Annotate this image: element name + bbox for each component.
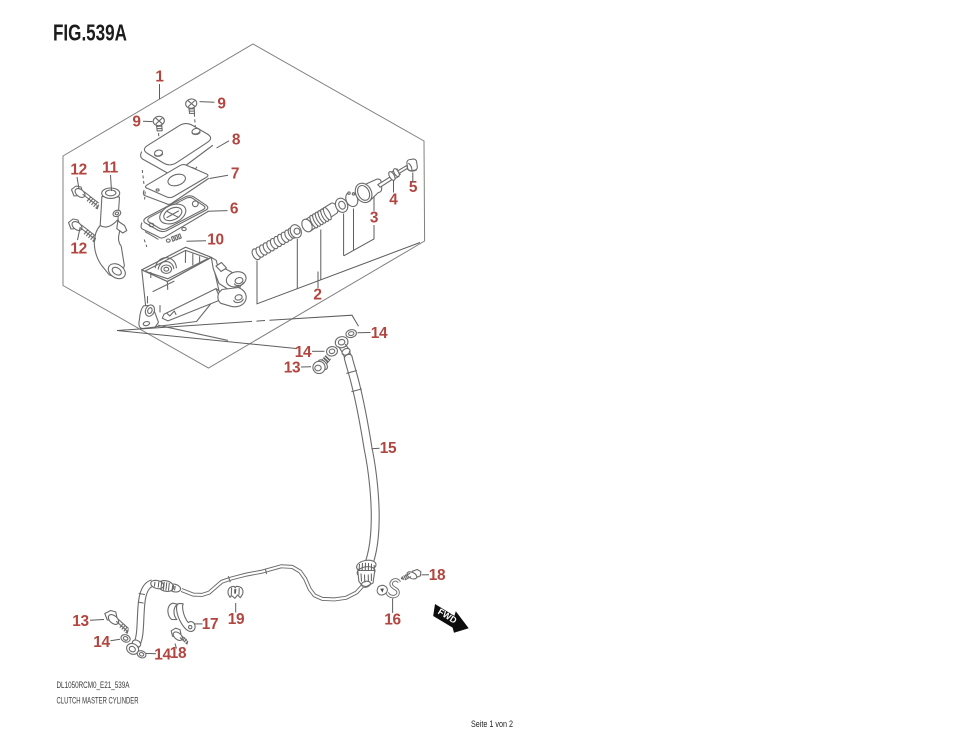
svg-text:14: 14 [371,325,388,342]
svg-text:9: 9 [217,95,225,112]
svg-text:13: 13 [72,613,89,630]
svg-text:8: 8 [232,131,241,148]
svg-text:12: 12 [70,161,87,178]
svg-text:3: 3 [370,209,378,226]
svg-text:15: 15 [380,440,397,457]
svg-text:FIG.539A: FIG.539A [53,20,127,46]
svg-text:18: 18 [429,567,446,584]
svg-text:13: 13 [284,359,301,376]
svg-text:14: 14 [93,634,110,651]
svg-text:5: 5 [409,179,418,196]
svg-text:14: 14 [295,344,312,361]
svg-text:19: 19 [228,611,245,628]
svg-text:6: 6 [230,200,238,217]
svg-text:Seite 1 von 2: Seite 1 von 2 [471,719,513,729]
svg-text:CLUTCH MASTER CYLINDER: CLUTCH MASTER CYLINDER [57,696,139,706]
svg-text:1: 1 [155,68,164,85]
svg-text:12: 12 [70,240,87,257]
svg-text:17: 17 [202,616,219,633]
svg-text:2: 2 [313,286,321,303]
svg-text:4: 4 [389,191,398,208]
svg-text:9: 9 [132,113,140,130]
svg-text:18: 18 [170,645,187,662]
svg-text:16: 16 [384,611,401,628]
svg-text:10: 10 [207,231,224,248]
svg-text:11: 11 [102,159,118,176]
svg-text:DL1050RCM0_E21_539A: DL1050RCM0_E21_539A [57,680,130,690]
svg-text:7: 7 [231,165,239,182]
